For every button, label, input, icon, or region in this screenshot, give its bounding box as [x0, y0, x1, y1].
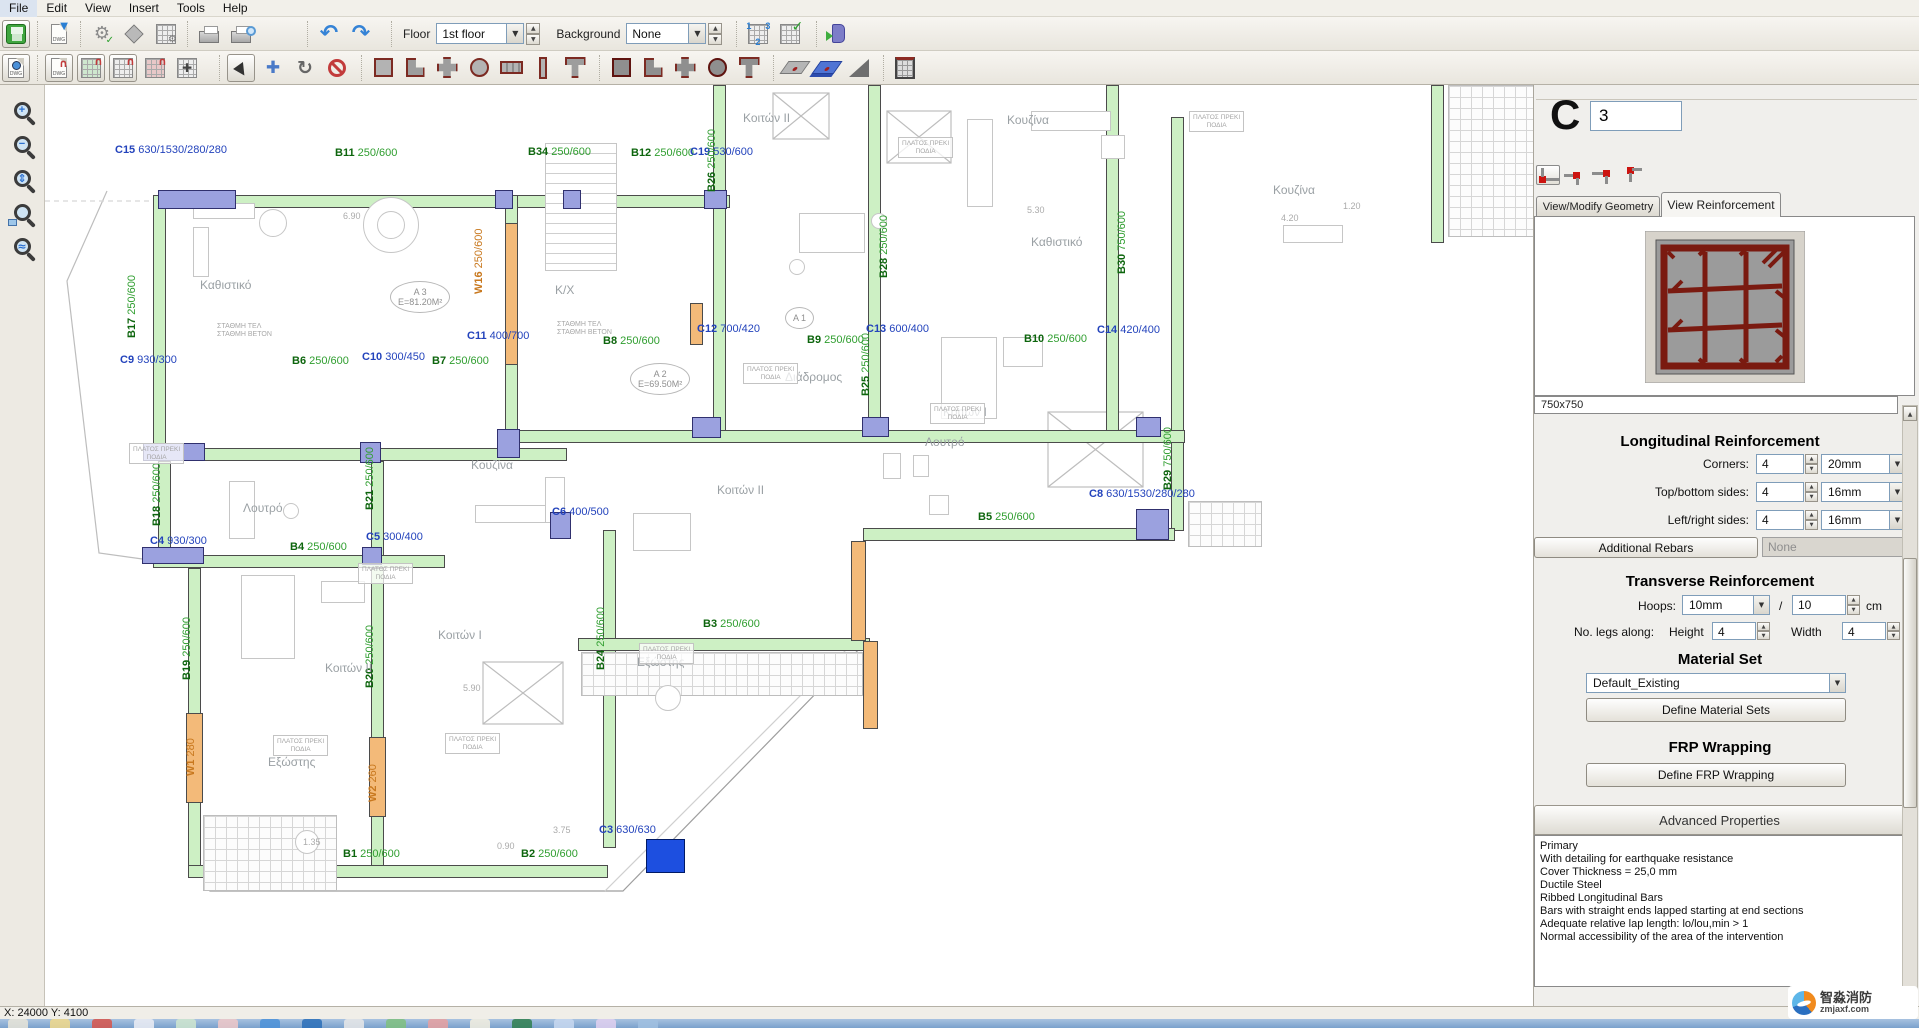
beam[interactable] — [1431, 85, 1444, 243]
advanced-property-line: With detailing for earthquake resistance — [1540, 853, 1899, 866]
column[interactable] — [563, 190, 581, 209]
3d-frame-button[interactable] — [891, 54, 919, 82]
watermark-url: zmjaxf.com — [1820, 1004, 1872, 1014]
column-rect-tool[interactable] — [497, 54, 525, 82]
zoom-extents-button[interactable]: ⇕ — [6, 163, 38, 193]
column[interactable] — [495, 190, 513, 209]
watermark-name: 智淼消防 — [1820, 991, 1872, 1004]
move-grid-button[interactable]: ✚ — [173, 54, 201, 82]
room-label: Κοιτών Ι — [438, 628, 482, 642]
tab-view-reinforcement[interactable]: View Reinforcement — [1661, 192, 1781, 217]
beam[interactable] — [505, 430, 1185, 443]
wall-label[interactable]: W1 280 — [186, 738, 197, 776]
taskbar-icon-15[interactable] — [596, 1019, 616, 1028]
beam-label[interactable]: B2 250/600 — [521, 849, 578, 860]
furniture — [967, 119, 993, 207]
taskbar-icon-16[interactable] — [638, 1019, 658, 1028]
dimension: 1.20 — [1343, 201, 1361, 211]
column[interactable] — [704, 190, 727, 209]
transverse-header: Transverse Reinforcement — [1534, 573, 1906, 590]
member-type-letter: C — [1550, 91, 1580, 139]
beam-label[interactable]: B6 250/600 — [292, 356, 349, 367]
column-label[interactable]: C11 400/700 — [467, 331, 529, 342]
dwg-eye-icon: DWG — [8, 58, 24, 78]
furniture — [799, 213, 865, 253]
balcony-grid-hatch — [203, 815, 337, 891]
scroll-thumb[interactable] — [1903, 558, 1917, 808]
save-icon — [6, 24, 26, 44]
grid-arrows-icon: ✚ — [177, 58, 197, 78]
lintel-note: ΠΛΑΤΟΣ ΠΡΕΚΙΠΟΔΙΑ — [129, 443, 184, 464]
jacket-square-tool[interactable] — [607, 54, 635, 82]
taskbar-icon-9[interactable] — [344, 1019, 364, 1028]
orientation-right-button[interactable] — [1592, 165, 1616, 185]
menu-item-view[interactable]: View — [76, 0, 120, 17]
lintel-note: ΠΛΑΤΟΣ ΠΡΕΚΙΠΟΔΙΑ — [743, 363, 798, 384]
area-label: Α 3Ε=81.20Μ² — [390, 281, 450, 313]
column-cross-tool[interactable] — [433, 54, 461, 82]
furniture — [193, 227, 209, 277]
floor-label: Floor — [403, 27, 430, 41]
beam-label[interactable]: B28 250/600 — [879, 215, 890, 278]
dwg-file-icon: DWG▼ — [51, 24, 67, 44]
dimension: 1.35 — [303, 837, 321, 847]
furniture — [241, 575, 295, 659]
T-jacket-icon — [739, 57, 760, 78]
cursor-icon — [233, 59, 250, 75]
beam[interactable] — [153, 195, 166, 451]
taskbar-icon-8[interactable] — [302, 1019, 322, 1028]
advanced-properties-text: PrimaryWith detailing for earthquake res… — [1534, 835, 1905, 987]
numbered-grid-icon: 132 — [748, 24, 768, 44]
snap-grid-color-button[interactable]: ∩ — [77, 54, 105, 82]
menu-item-tools[interactable]: Tools — [168, 0, 214, 17]
column-cross-section-image — [1645, 231, 1805, 383]
furniture — [1101, 135, 1125, 159]
room-label: Κοιτών ΙΙ — [743, 111, 790, 125]
beam-label[interactable]: B34 250/600 — [528, 147, 591, 158]
view-dwg-button[interactable]: DWG — [2, 54, 30, 82]
undo-icon: ↶ — [320, 21, 338, 46]
tab-view-modify-geometry[interactable]: View/Modify Geometry — [1536, 196, 1660, 217]
column-label[interactable]: C3 630/630 — [599, 825, 656, 836]
masonry-wall[interactable] — [851, 541, 866, 641]
column-label[interactable]: C13 600/400 — [866, 324, 929, 335]
beam[interactable] — [863, 528, 1175, 541]
furniture — [283, 503, 299, 519]
leftright-diameter-select[interactable]: 16mm▼ — [1821, 510, 1906, 530]
move-tool[interactable]: ✚ — [259, 54, 287, 82]
grid-icon: ⚙ — [156, 24, 176, 44]
select-tool[interactable] — [227, 54, 255, 82]
legs-label: No. legs along: — [1574, 625, 1654, 639]
leftright-count-field[interactable]: 4 — [1756, 510, 1804, 530]
room-label: Λουτρό — [243, 501, 283, 515]
printer-icon — [199, 31, 219, 43]
topbottom-label: Top/bottom sides: — [1534, 485, 1749, 499]
legs-height-field[interactable]: 4 — [1712, 622, 1756, 640]
beam-label[interactable]: B21 250/600 — [365, 447, 376, 510]
redo-icon: ↷ — [352, 21, 370, 46]
taskbar-icon-1[interactable] — [8, 1019, 28, 1028]
lintel-note: ΠΛΑΤΟΣ ΠΡΕΚΙΠΟΔΙΑ — [273, 735, 328, 756]
jacket-L-tool[interactable] — [639, 54, 667, 82]
beam-label[interactable]: B11 250/600 — [335, 148, 397, 159]
beam-label[interactable]: B4 250/600 — [290, 542, 347, 553]
zoom-in-icon: + — [14, 102, 31, 119]
background-label: Background — [556, 27, 620, 41]
beam-label[interactable]: B24 250/600 — [596, 607, 607, 670]
lintel-note: ΠΛΑΤΟΣ ΠΡΕΚΙΠΟΔΙΑ — [898, 137, 953, 158]
snap-members-button[interactable]: ∩ — [141, 54, 169, 82]
ramp-tool[interactable] — [845, 54, 873, 82]
advanced-property-line: Ductile Steel — [1540, 879, 1899, 892]
undo-button[interactable]: ↶ — [315, 20, 343, 48]
lintel-note: ΠΛΑΤΟΣ ΠΡΕΚΙΠΟΔΙΑ — [930, 403, 985, 424]
print-button[interactable] — [195, 20, 223, 48]
dimension: 5.90 — [463, 683, 481, 693]
longitudinal-header: Longitudinal Reinforcement — [1534, 433, 1906, 450]
hoop-spacing-spinner[interactable]: ▲▼ — [1847, 595, 1860, 615]
topbottom-count-field[interactable]: 4 — [1756, 482, 1804, 502]
toolbar-standard: DWG▼ ⚙✓ ⚙ ↶ ↷ Floor 1st floor▼ ▲▼ Backgr… — [0, 17, 1919, 51]
wall-T-tool[interactable] — [561, 54, 589, 82]
zoom-previous-icon: ≈ — [14, 238, 31, 255]
rotate-icon: ↻ — [297, 57, 313, 79]
zoom-toolbar: + − ⇕ ≈ — [0, 85, 45, 1006]
column-label[interactable]: C12 700/420 — [697, 324, 760, 335]
define-frp-wrapping-button[interactable]: Define FRP Wrapping — [1586, 763, 1846, 787]
zoom-in-button[interactable]: + — [6, 95, 38, 125]
advanced-property-line: Cover Thickness = 25,0 mm — [1540, 866, 1899, 879]
export-dwg-button[interactable]: DWG▼ — [45, 20, 73, 48]
circle-jacket-icon — [708, 58, 727, 77]
beam-label[interactable]: B5 250/600 — [978, 512, 1035, 523]
frp-header: FRP Wrapping — [1534, 739, 1906, 756]
taskbar-icon-14[interactable] — [554, 1019, 574, 1028]
lintel-note: ΠΛΑΤΟΣ ΠΡΕΚΙΠΟΔΙΑ — [1189, 111, 1244, 132]
advanced-property-line: Ribbed Longitudinal Bars — [1540, 892, 1899, 905]
hoops-label: Hoops: — [1594, 599, 1676, 613]
room-label: Κουζίνα — [471, 458, 513, 472]
room-label: Κουζίνα — [1273, 183, 1315, 197]
furniture — [475, 505, 547, 523]
material-set-select[interactable]: Default_Existing▼ — [1586, 673, 1846, 693]
exit-button[interactable] — [824, 20, 852, 48]
masonry-wall[interactable] — [505, 223, 518, 365]
beam-label[interactable]: B1 250/600 — [343, 849, 400, 860]
column-circle-tool[interactable] — [465, 54, 493, 82]
settings-button[interactable]: ⚙✓ — [88, 20, 116, 48]
beam-label[interactable]: B7 250/600 — [432, 356, 489, 367]
advanced-property-line: Bars with straight ends lapped starting … — [1540, 905, 1899, 918]
furniture — [377, 211, 405, 239]
column[interactable] — [1136, 417, 1161, 437]
furniture — [545, 143, 617, 271]
topbottom-diameter-select[interactable]: 16mm▼ — [1821, 482, 1906, 502]
advanced-property-line: Normal accessibility of the area of the … — [1540, 931, 1899, 944]
blue-slab-icon — [811, 61, 842, 74]
furniture — [259, 209, 287, 237]
taskbar-icon-7[interactable] — [260, 1019, 280, 1028]
wall-label[interactable]: W2 260 — [368, 764, 379, 802]
hoops-diameter-select[interactable]: 10mm▼ — [1682, 595, 1770, 615]
column[interactable] — [692, 417, 721, 438]
advanced-property-line: Adequate relative lap length: lo/lou,min… — [1540, 918, 1899, 931]
width-label: Width — [1791, 625, 1822, 639]
legs-width-spinner[interactable]: ▲▼ — [1887, 622, 1900, 640]
material-set-header: Material Set — [1534, 651, 1906, 668]
toolbar-drawing: DWG DWG∩ ∩ ∩ ∩ ✚ ✚ ↻ — [0, 51, 1919, 85]
lintel-note: ΠΛΑΤΟΣ ΠΡΕΚΙΠΟΔΙΑ — [639, 643, 694, 664]
menu-item-help[interactable]: Help — [214, 0, 257, 17]
column-L-tool[interactable] — [401, 54, 429, 82]
properties-panel: C View/Modify Geometry View Reinforcemen… — [1533, 85, 1919, 1006]
slab-icon — [779, 61, 810, 74]
rotate-tool[interactable]: ↻ — [291, 54, 319, 82]
beam[interactable] — [578, 638, 870, 651]
advanced-properties-header[interactable]: Advanced Properties — [1534, 805, 1905, 835]
building-frame-icon — [895, 57, 915, 79]
corners-spinner[interactable]: ▲▼ — [1805, 454, 1818, 474]
redo-button[interactable]: ↷ — [347, 20, 375, 48]
cross-jacket-icon — [675, 57, 696, 78]
taskbar-icon-5[interactable] — [176, 1019, 196, 1028]
taskbar-icon-11[interactable] — [428, 1019, 448, 1028]
zoom-extents-icon: ⇕ — [14, 170, 31, 187]
circle-section-icon — [470, 58, 489, 77]
legs-width-field[interactable]: 4 — [1842, 622, 1886, 640]
beam-label[interactable]: B20 250/600 — [365, 625, 376, 688]
no-entry-icon — [328, 59, 346, 77]
grid-magnet-icon: ∩ — [113, 58, 133, 78]
L-jacket-icon — [644, 58, 663, 77]
beam-label[interactable]: B12 250/600 — [631, 148, 694, 159]
room-label: Κουζίνα — [1007, 113, 1049, 127]
hoop-spacing-field[interactable]: 10 — [1792, 595, 1846, 615]
jacket-circle-tool[interactable] — [703, 54, 731, 82]
beam-label[interactable]: B29 750/600 — [1163, 427, 1174, 490]
corners-diameter-select[interactable]: 20mm▼ — [1821, 454, 1906, 474]
check-model-button[interactable]: ✓ — [776, 20, 804, 48]
slab-tool[interactable] — [781, 54, 809, 82]
column-label[interactable]: C5 300/400 — [366, 532, 423, 543]
scroll-up-button[interactable]: ▲ — [1903, 406, 1917, 421]
area-label: Α 1 — [785, 307, 814, 329]
square-jacket-icon — [612, 58, 631, 77]
ramp-icon — [849, 59, 869, 77]
furniture — [633, 513, 691, 551]
room-label: Λουτρό — [925, 435, 965, 449]
zoom-out-button[interactable]: − — [6, 129, 38, 159]
dimension: 5.30 — [1027, 205, 1045, 215]
dimension: 6.90 — [343, 211, 361, 221]
windows-taskbar[interactable] — [0, 1019, 1919, 1028]
floor-select[interactable]: 1st floor▼ — [436, 23, 524, 44]
beam-label[interactable]: B17 250/600 — [127, 275, 138, 338]
snap-grid-button[interactable]: ∩ — [109, 54, 137, 82]
taskbar-icon-2[interactable] — [50, 1019, 70, 1028]
3d-view-button[interactable] — [120, 20, 148, 48]
menu-item-file[interactable]: File — [0, 0, 37, 17]
jacket-cross-tool[interactable] — [671, 54, 699, 82]
beam-label[interactable]: B10 250/600 — [1024, 334, 1087, 345]
section-size-field[interactable]: 750x750 — [1534, 396, 1898, 414]
beam-label[interactable]: B9 250/600 — [807, 335, 864, 346]
orientation-bottom-right-button[interactable] — [1564, 165, 1588, 185]
advanced-property-line: Primary — [1540, 840, 1899, 853]
column-label[interactable]: C4 930/300 — [150, 536, 207, 547]
column-label[interactable]: C15 630/1530/280/280 — [115, 145, 227, 156]
background-select[interactable]: None▼ — [626, 23, 706, 44]
beam-label[interactable]: B8 250/600 — [603, 336, 660, 347]
orientation-bottom-left-button[interactable] — [1536, 165, 1560, 185]
lintel-note: ΠΛΑΤΟΣ ΠΡΕΚΙΠΟΔΙΑ — [358, 563, 413, 584]
T-section-icon — [565, 57, 586, 78]
column-label[interactable]: C14 420/400 — [1097, 325, 1160, 336]
zoom-window-button[interactable] — [6, 197, 38, 227]
taskbar-icon-4[interactable] — [134, 1019, 154, 1028]
cursor-coordinates: X: 24000 Y: 4100 — [4, 1007, 88, 1019]
column[interactable] — [158, 190, 236, 209]
taskbar-icon-6[interactable] — [218, 1019, 238, 1028]
dimension: 3.75 — [553, 825, 571, 835]
L-section-icon — [406, 58, 425, 77]
square-section-icon — [374, 58, 393, 77]
beam-label[interactable]: B26 250/600 — [707, 129, 718, 192]
slash-label: / — [1779, 599, 1782, 613]
exit-door-icon — [832, 24, 845, 43]
dimension: 0.90 — [497, 841, 515, 851]
cross-section-icon — [437, 57, 458, 78]
dropdown-arrow-icon: ▼ — [506, 24, 523, 43]
height-label: Height — [1669, 625, 1704, 639]
beam-label[interactable]: B3 250/600 — [703, 619, 760, 630]
room-label: Καθιστικό — [200, 278, 251, 292]
balcony-grid-hatch — [581, 652, 863, 696]
panel-scrollbar[interactable]: ▲ ▼ — [1902, 405, 1918, 1003]
column-label[interactable]: C9 930/300 — [120, 355, 177, 366]
column-label[interactable]: C6 400/500 — [552, 507, 609, 518]
furniture — [929, 495, 949, 515]
furniture — [655, 685, 681, 711]
taskbar-icon-10[interactable] — [386, 1019, 406, 1028]
watermark: 智淼消防 zmjaxf.com — [1788, 986, 1918, 1019]
column-label[interactable]: C10 300/450 — [362, 352, 425, 363]
masonry-wall[interactable] — [863, 641, 878, 729]
zoom-previous-button[interactable]: ≈ — [6, 231, 38, 261]
room-label: Κοιτών ΙΙ — [717, 483, 764, 497]
red-grid-magnet-icon: ∩ — [145, 58, 165, 78]
beam-label[interactable]: B19 250/600 — [182, 617, 193, 680]
drawing-canvas[interactable]: C15 630/1530/280/280B11 250/600B34 250/6… — [45, 85, 1533, 1006]
furniture — [1283, 225, 1343, 243]
area-label: Α 2Ε=69.50Μ² — [630, 363, 690, 395]
status-bar: X: 24000 Y: 4100 — [0, 1006, 1919, 1019]
furniture — [913, 455, 929, 477]
orientation-top-button[interactable] — [1620, 165, 1644, 185]
define-material-sets-button[interactable]: Define Material Sets — [1586, 698, 1846, 722]
column-square-tool[interactable] — [369, 54, 397, 82]
grid-magnet-green-icon: ∩ — [81, 58, 101, 78]
check-grid-icon: ✓ — [780, 24, 800, 44]
beam[interactable] — [371, 568, 384, 868]
selected-column-C3[interactable] — [646, 839, 685, 873]
dropdown-arrow-icon: ▼ — [688, 24, 705, 43]
move-icon: ✚ — [266, 58, 280, 78]
balcony-grid-hatch — [1448, 85, 1533, 237]
zoom-out-icon: − — [14, 136, 31, 153]
save-button[interactable] — [2, 20, 30, 48]
furniture — [321, 581, 365, 603]
additional-rebars-value: None — [1762, 537, 1906, 557]
level-note: ΣΤΑΘΜΗ ΤΕΛΣΤΑΘΜΗ ΒΕΤΟΝ — [557, 321, 612, 337]
beam-label[interactable]: B18 250/600 — [152, 463, 163, 526]
grid-settings-button[interactable]: ⚙ — [152, 20, 180, 48]
taskbar-icon-12[interactable] — [470, 1019, 490, 1028]
room-label: Καθιστικό — [1031, 235, 1082, 249]
corners-label: Corners: — [1534, 457, 1749, 471]
snap-dwg-button[interactable]: DWG∩ — [45, 54, 73, 82]
cube-icon — [124, 24, 143, 43]
storey-manager-button[interactable]: 132 — [744, 20, 772, 48]
beam-slab-tool[interactable] — [813, 54, 841, 82]
dimension: 4.20 — [1281, 213, 1299, 223]
taskbar-icon-3[interactable] — [92, 1019, 112, 1028]
print-preview-button[interactable] — [227, 20, 255, 48]
leftright-label: Left/right sides: — [1534, 513, 1749, 527]
wall-tool[interactable] — [529, 54, 557, 82]
room-label: Εξώστης — [268, 755, 315, 769]
room-label: Κοιτών ΙΙ — [325, 661, 372, 675]
member-number-input[interactable] — [1590, 101, 1682, 131]
column[interactable] — [142, 547, 204, 564]
menu-bar: FileEditViewInsertToolsHelp — [0, 0, 1919, 17]
menu-item-insert[interactable]: Insert — [120, 0, 168, 17]
wall-label[interactable]: W16 250/600 — [474, 229, 485, 294]
corners-count-field[interactable]: 4 — [1756, 454, 1804, 474]
menu-item-edit[interactable]: Edit — [37, 0, 76, 17]
balcony-grid-hatch — [1188, 501, 1262, 547]
legs-height-spinner[interactable]: ▲▼ — [1757, 622, 1770, 640]
printer-preview-icon — [231, 31, 251, 43]
additional-rebars-button[interactable]: Additional Rebars — [1534, 537, 1758, 558]
room-label: Κ/Χ — [555, 283, 574, 297]
column-label[interactable]: C8 630/1530/280/280 — [1089, 489, 1195, 500]
taskbar-icon-13[interactable] — [512, 1019, 532, 1028]
leftright-spinner[interactable]: ▲▼ — [1805, 510, 1818, 530]
column[interactable] — [497, 429, 520, 458]
lintel-note: ΠΛΑΤΟΣ ΠΡΕΚΙΠΟΔΙΑ — [445, 733, 500, 754]
wall-section-icon — [539, 57, 547, 79]
rect-section-icon — [500, 61, 523, 74]
column-label[interactable]: C19 530/600 — [690, 147, 753, 158]
furniture — [883, 453, 901, 479]
beam-label[interactable]: B30 750/600 — [1117, 211, 1128, 274]
column[interactable] — [1136, 509, 1169, 540]
column[interactable] — [862, 417, 889, 437]
level-note: ΣΤΑΘΜΗ ΤΕΛΣΤΑΘΜΗ ΒΕΤΟΝ — [217, 323, 272, 339]
watermark-logo-icon — [1792, 991, 1816, 1015]
floor-spinner[interactable]: ▲▼ — [526, 23, 540, 45]
topbottom-spinner[interactable]: ▲▼ — [1805, 482, 1818, 502]
dwg-magnet-icon: DWG∩ — [51, 58, 67, 78]
delete-tool[interactable] — [323, 54, 351, 82]
furniture — [789, 259, 805, 275]
background-spinner[interactable]: ▲▼ — [708, 23, 722, 45]
jacket-T-tool[interactable] — [735, 54, 763, 82]
section-preview-pane — [1534, 216, 1915, 396]
